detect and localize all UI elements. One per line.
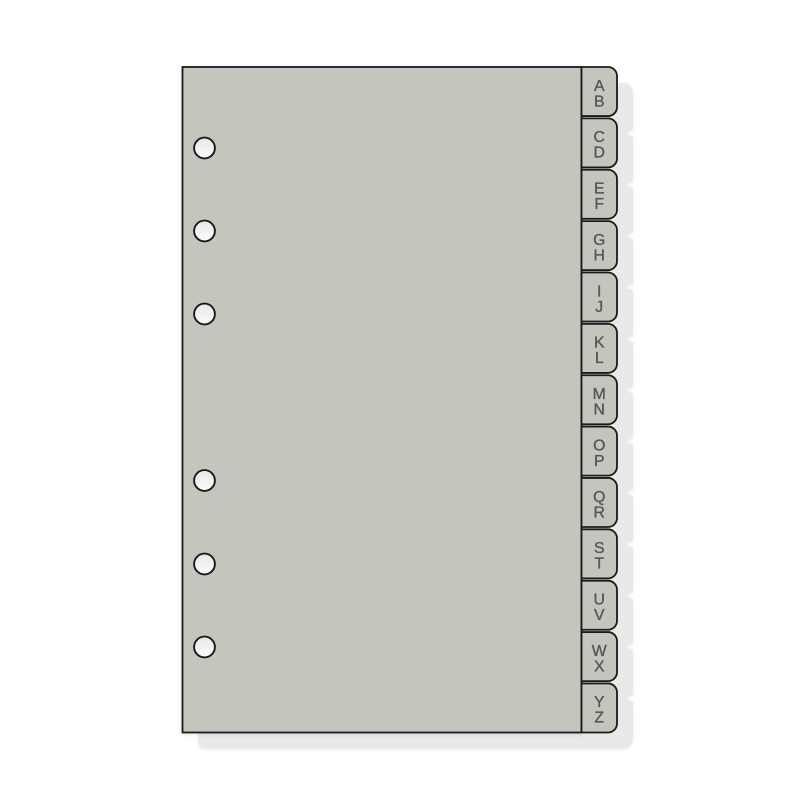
svg-text:M: M — [593, 386, 606, 403]
svg-text:P: P — [594, 453, 605, 470]
svg-text:S: S — [594, 540, 605, 557]
svg-text:K: K — [594, 335, 605, 352]
svg-text:V: V — [594, 607, 605, 624]
svg-text:L: L — [595, 350, 604, 367]
svg-text:X: X — [594, 658, 605, 675]
svg-text:U: U — [594, 591, 605, 608]
svg-text:H: H — [594, 247, 605, 264]
svg-text:J: J — [595, 299, 603, 316]
svg-text:G: G — [593, 232, 605, 249]
svg-text:A: A — [594, 78, 605, 95]
svg-text:E: E — [594, 181, 605, 198]
svg-text:O: O — [593, 437, 605, 454]
svg-text:Q: Q — [593, 489, 605, 506]
svg-text:Y: Y — [594, 694, 605, 711]
svg-text:D: D — [594, 145, 605, 162]
svg-text:N: N — [594, 402, 605, 419]
svg-text:I: I — [597, 283, 601, 300]
svg-text:T: T — [594, 556, 604, 573]
svg-text:F: F — [594, 196, 604, 213]
svg-text:W: W — [592, 643, 607, 660]
svg-text:B: B — [594, 93, 605, 110]
svg-text:C: C — [594, 129, 605, 146]
svg-text:R: R — [594, 504, 605, 521]
svg-text:Z: Z — [594, 710, 604, 727]
